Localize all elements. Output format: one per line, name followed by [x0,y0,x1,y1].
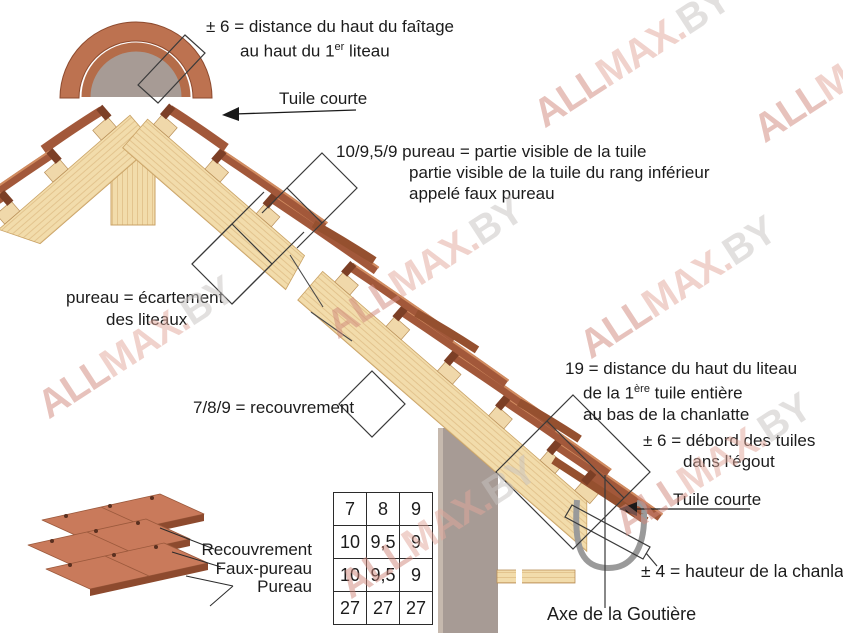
liteau-distance-label: 19 = distance du haut du liteau de la 1è… [565,358,797,425]
recouvrement-label: 7/8/9 = recouvrement [193,397,354,418]
faitage-line1: ± 6 = distance du haut du faîtage [206,16,454,37]
stack-label-faux-pureau: Faux-pureau [150,560,312,579]
faitage-line2: au haut du 1er liteau [206,37,454,62]
table-cell: 10 [334,559,367,592]
table-cell: 27 [400,592,433,625]
tuile-courte-top-label: Tuile courte [279,88,367,109]
table-cell: 7 [334,493,367,526]
roof-tiling-diagram: ± 6 = distance du haut du faîtage au hau… [0,0,843,636]
table-row: 10 9,5 9 [334,526,433,559]
table-cell: 8 [367,493,400,526]
stack-label-pureau: Pureau [150,578,312,597]
axe-goutiere-label: Axe de la Goutière [547,604,696,625]
debord-line2: dans l’égout [683,451,775,472]
table-cell: 9,5 [367,526,400,559]
table-row: 27 27 27 [334,592,433,625]
table-cell: 10 [334,526,367,559]
ecartement-line1: pureau = écartement [66,287,223,308]
faitage-label: ± 6 = distance du haut du faîtage au hau… [206,16,454,62]
table-row: 7 8 9 [334,493,433,526]
pureau-visible-label: 10/9,5/9 pureau = partie visible de la t… [336,141,710,204]
table-cell: 9 [400,493,433,526]
table-cell: 27 [334,592,367,625]
chanlatte-label: ± 4 = hauteur de la chanlatte [641,561,843,582]
table-cell: 9 [400,559,433,592]
liteau-line2: de la 1ère tuile entière [565,379,797,404]
table-row: 10 9,5 9 [334,559,433,592]
ecartement-line2: des liteaux [106,309,187,330]
table-cell: 27 [367,592,400,625]
table-cell: 9 [400,526,433,559]
wall-plate [497,569,575,584]
debord-line1: ± 6 = débord des tuiles [643,430,815,451]
table-cell: 9,5 [367,559,400,592]
dimensions-table: 7 8 9 10 9,5 9 10 9,5 9 27 27 27 [333,492,433,625]
tile-stack-labels: Recouvrement Faux-pureau Pureau [150,541,312,597]
stack-label-recouvrement: Recouvrement [150,541,312,560]
tuile-courte-bottom-label: Tuile courte [673,489,761,510]
